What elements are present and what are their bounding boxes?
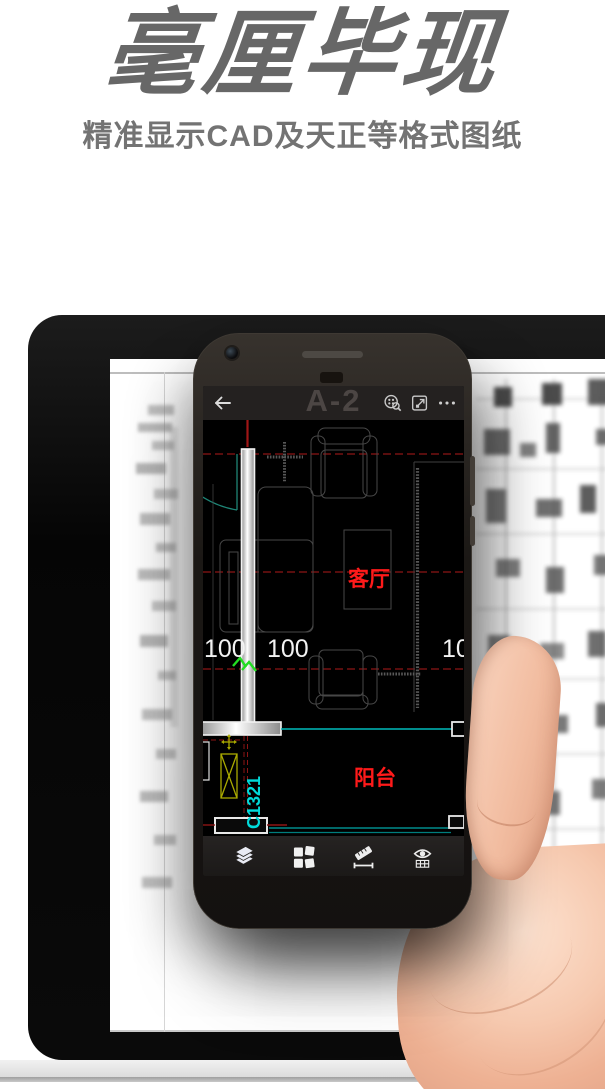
promo-page: 毫厘毕现 精准显示CAD及天正等格式图纸 bbox=[0, 0, 605, 1089]
header: 毫厘毕现 精准显示CAD及天正等格式图纸 bbox=[0, 0, 605, 155]
smartphone: A-2 bbox=[193, 333, 472, 929]
balcony-lines bbox=[203, 722, 464, 820]
display-icon[interactable] bbox=[409, 843, 436, 870]
room-label-balcony: 阳台 bbox=[354, 766, 396, 790]
phone-screen: A-2 bbox=[203, 386, 464, 876]
dimension-labels: 100 100 10 bbox=[204, 635, 464, 663]
app-bar: A-2 bbox=[203, 386, 464, 420]
volume-button[interactable] bbox=[470, 456, 475, 506]
room-label-living: 客厅 bbox=[348, 567, 390, 591]
page-subtitle: 精准显示CAD及天正等格式图纸 bbox=[0, 111, 605, 155]
bottom-toolbar bbox=[203, 836, 464, 876]
dim-100-left: 100 bbox=[204, 635, 246, 663]
blocks-icon[interactable] bbox=[290, 843, 317, 870]
front-camera bbox=[226, 347, 238, 359]
dim-100-mid: 100 bbox=[267, 635, 309, 663]
window-tag: C1321 bbox=[244, 776, 264, 829]
proximity-sensor bbox=[320, 372, 343, 383]
page-title: 毫厘毕现 bbox=[0, 2, 605, 105]
find-block-icon[interactable] bbox=[382, 392, 404, 414]
window-block bbox=[221, 734, 237, 798]
earpiece-speaker bbox=[302, 351, 363, 358]
bottom-wall-segments bbox=[203, 816, 464, 833]
dim-10-right: 10 bbox=[442, 635, 464, 663]
layers-icon[interactable] bbox=[231, 843, 258, 870]
measure-icon[interactable] bbox=[350, 843, 377, 870]
cad-canvas[interactable]: 100 100 10 客厅 阳台 C1321 bbox=[203, 420, 464, 836]
zoom-extents-icon[interactable] bbox=[409, 392, 431, 414]
more-icon[interactable] bbox=[436, 392, 458, 414]
door-swing bbox=[203, 454, 237, 510]
blueprint-texture-left bbox=[118, 397, 198, 942]
power-button[interactable] bbox=[470, 516, 475, 546]
back-arrow-icon[interactable] bbox=[211, 391, 235, 415]
walls bbox=[203, 449, 281, 735]
